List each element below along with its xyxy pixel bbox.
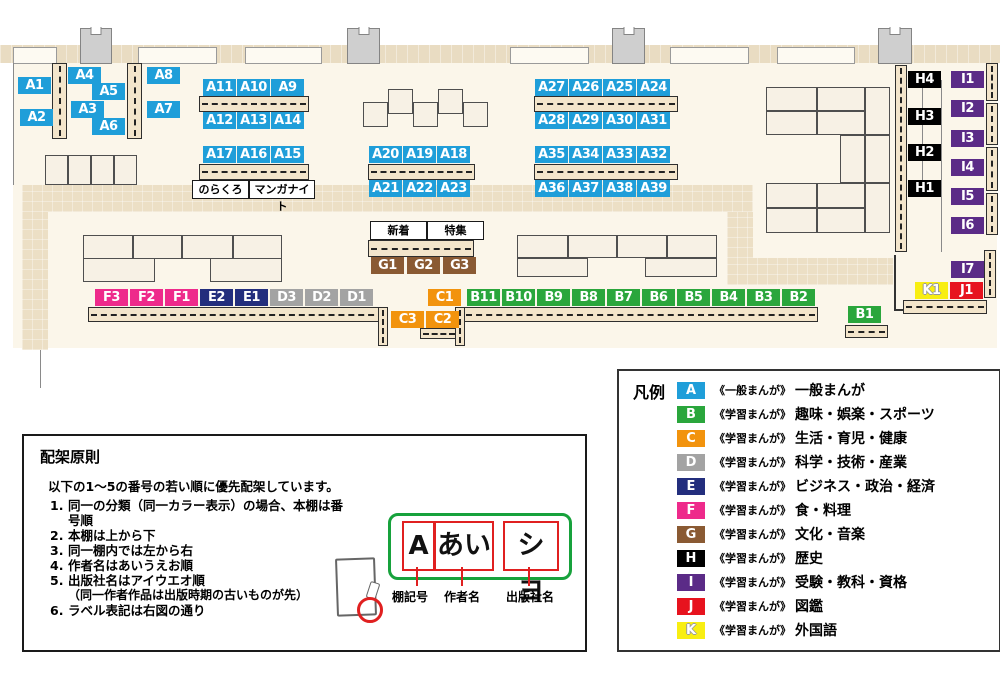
shelf-label-a18: A18 (437, 146, 470, 163)
shelf-label-j1: J1 (950, 282, 983, 299)
legend-item: D 《学習まんが》 科学・技術・産業 (677, 450, 935, 474)
shelf-frame-line (941, 80, 942, 252)
table (667, 235, 717, 258)
shelf-label-d3: D3 (270, 289, 303, 306)
principles-item: 1. 同一の分類（同一カラー表示）の場合、本棚は番号順 (50, 498, 350, 528)
principles-item-text: 同一の分類（同一カラー表示）の場合、本棚は番号順 (68, 498, 350, 528)
principles-intro: 以下の1～5の番号の若い順に優先配架しています。 (48, 476, 339, 495)
shelf-label-a1: A1 (18, 77, 51, 94)
shelf-label-a23: A23 (437, 180, 470, 197)
bookshelf (199, 164, 309, 180)
shelf-label-i5: I5 (951, 188, 984, 205)
legend-item: A 《一般まんが》 一般まんが (677, 378, 935, 402)
shelf-label-a33: A33 (603, 146, 636, 163)
note-norakuro: のらくろ (192, 180, 249, 199)
shelf-label-a34: A34 (569, 146, 602, 163)
shelf-label-i1: I1 (951, 71, 984, 88)
principles-list: 1. 同一の分類（同一カラー表示）の場合、本棚は番号順 2. 本棚は上から下 3… (50, 498, 350, 618)
legend-color-swatch: I (677, 574, 705, 591)
legend-kicker: 《学習まんが》 (714, 574, 791, 590)
pillar (347, 28, 380, 64)
legend-item: F 《学習まんが》 食・料理 (677, 498, 935, 522)
shelf-label-b4: B4 (712, 289, 745, 306)
legend-item: H 《学習まんが》 歴史 (677, 546, 935, 570)
legend-kicker: 《学習まんが》 (714, 430, 791, 446)
table (133, 235, 182, 259)
legend-kicker: 《学習まんが》 (714, 502, 791, 518)
shelf-label-b9: B9 (537, 289, 570, 306)
bookshelf (986, 103, 998, 145)
principles-item-text: 本棚は上から下 (68, 528, 156, 543)
table (865, 183, 890, 233)
principles-item-number: 4. (50, 558, 68, 573)
principles-item-text: 出版社名はアイウエオ順 (68, 573, 205, 588)
walkway (727, 212, 753, 258)
legend-item: C 《学習まんが》 生活・育児・健康 (677, 426, 935, 450)
table (865, 87, 890, 135)
legend-category-label: 科学・技術・産業 (795, 452, 907, 472)
shelf-label-c2: C2 (426, 311, 459, 328)
shelf-label-a16: A16 (237, 146, 270, 163)
legend-color-swatch: G (677, 526, 705, 543)
legend-item: E 《学習まんが》 ビジネス・政治・経済 (677, 474, 935, 498)
legend-kicker: 《学習まんが》 (714, 598, 791, 614)
callout-shelf-code: 棚記号 (392, 588, 428, 605)
table (233, 235, 282, 259)
window (245, 47, 322, 64)
shelf-label-a37: A37 (569, 180, 602, 197)
callout-line (528, 567, 530, 586)
legend-category-label: 受験・教科・資格 (795, 572, 907, 592)
shelf-label-h1: H1 (908, 180, 941, 197)
shelf-label-b5: B5 (677, 289, 710, 306)
table (83, 258, 155, 282)
shelf-label-a9: A9 (271, 79, 304, 96)
shelf-label-k1: K1 (915, 282, 948, 299)
bookshelf (420, 328, 458, 339)
legend-category-label: 趣味・娯楽・スポーツ (795, 404, 935, 424)
wall-line (40, 350, 41, 388)
display-table (363, 102, 388, 127)
bookshelf (463, 307, 818, 322)
callout-publisher: 出版社名 (506, 588, 554, 605)
note-new-arrivals: 新着 (370, 221, 427, 240)
shelf-label-a14: A14 (271, 112, 304, 129)
bookshelf (986, 193, 998, 235)
shelf-label-a13: A13 (237, 112, 270, 129)
shelf-label-a28: A28 (535, 112, 568, 129)
shelf-label-a38: A38 (603, 180, 636, 197)
shelf-label-a35: A35 (535, 146, 568, 163)
legend-item: G 《学習まんが》 文化・音楽 (677, 522, 935, 546)
table (766, 183, 817, 208)
wall-line (894, 255, 896, 311)
bookshelf (127, 63, 142, 139)
window (670, 47, 749, 64)
window (13, 47, 57, 64)
shelf-label-i3: I3 (951, 130, 984, 147)
principles-item-subtext: （同一作者作品は出版時期の古いものが先） (50, 588, 350, 603)
table (568, 235, 617, 258)
shelf-label-a7: A7 (147, 101, 180, 118)
bookshelf (88, 307, 387, 322)
principles-item-text: 同一棚内では左から右 (68, 543, 193, 558)
shelf-label-d1: D1 (340, 289, 373, 306)
shelf-label-a36: A36 (535, 180, 568, 197)
shelf-label-b3: B3 (747, 289, 780, 306)
table (517, 235, 568, 258)
legend-kicker: 《学習まんが》 (714, 526, 791, 542)
walkway (22, 212, 48, 350)
shelf-label-g3: G3 (443, 257, 476, 274)
shelf-label-e1: E1 (235, 289, 268, 306)
table (645, 258, 717, 277)
callout-author: 作者名 (444, 588, 480, 605)
shelf-label-d2: D2 (305, 289, 338, 306)
legend-color-swatch: B (677, 406, 705, 423)
shelf-label-a21: A21 (369, 180, 402, 197)
legend-color-swatch: F (677, 502, 705, 519)
shelf-label-e2: E2 (200, 289, 233, 306)
shelf-label-a20: A20 (369, 146, 402, 163)
legend-item: J 《学習まんが》 図鑑 (677, 594, 935, 618)
shelf-label-b1: B1 (848, 306, 881, 323)
shelf-label-h4: H4 (908, 71, 941, 88)
table (517, 258, 588, 277)
legend-item: I 《学習まんが》 受験・教科・資格 (677, 570, 935, 594)
window (510, 47, 589, 64)
shelf-label-b8: B8 (572, 289, 605, 306)
shelf-label-f1: F1 (165, 289, 198, 306)
shelf-label-a17: A17 (203, 146, 236, 163)
shelf-label-a30: A30 (603, 112, 636, 129)
bookshelf (199, 96, 309, 112)
shelf-label-i2: I2 (951, 100, 984, 117)
bookshelf (845, 325, 888, 338)
bookshelf (903, 300, 987, 314)
shelf-label-g2: G2 (407, 257, 440, 274)
shelf-label-a3: A3 (71, 101, 104, 118)
legend-color-swatch: E (677, 478, 705, 495)
bookshelf (984, 250, 996, 298)
bookshelf (378, 307, 388, 346)
table (840, 135, 865, 183)
principles-item: 4. 作者名はあいうえお順 (50, 558, 350, 573)
legend-category-label: 文化・音楽 (795, 524, 865, 544)
shelf-label-a15: A15 (271, 146, 304, 163)
shelf-label-b6: B6 (642, 289, 675, 306)
principles-item-number: 2. (50, 528, 68, 543)
principles-item-number: 5. (50, 573, 68, 588)
label-cell-shelf-code: A (402, 521, 435, 571)
shelf-label-a2: A2 (20, 109, 53, 126)
table (817, 87, 865, 111)
shelf-label-a27: A27 (535, 79, 568, 96)
principles-item-number: 6. (50, 603, 68, 618)
legend-category-label: 食・料理 (795, 500, 851, 520)
legend-category-label: 図鑑 (795, 596, 823, 616)
pillar (80, 28, 112, 64)
legend-kicker: 《一般まんが》 (714, 382, 791, 398)
shelf-label-f2: F2 (130, 289, 163, 306)
shelf-label-a19: A19 (403, 146, 436, 163)
table (766, 111, 817, 135)
shelf-label-a32: A32 (637, 146, 670, 163)
table (182, 235, 233, 259)
pillar (878, 28, 912, 64)
shelf-label-b11: B11 (467, 289, 500, 306)
legend-color-swatch: D (677, 454, 705, 471)
shelf-label-f3: F3 (95, 289, 128, 306)
legend-color-swatch: H (677, 550, 705, 567)
shelf-label-a8: A8 (147, 67, 180, 84)
principles-item: 2. 本棚は上から下 (50, 528, 350, 543)
bookshelf (368, 240, 474, 257)
walkway (727, 258, 893, 285)
shelf-label-a25: A25 (603, 79, 636, 96)
table (817, 208, 865, 233)
legend-category-label: 外国語 (795, 620, 837, 640)
shelf-label-b7: B7 (607, 289, 640, 306)
callout-line (461, 567, 463, 586)
bookshelf (534, 96, 678, 112)
legend-color-swatch: C (677, 430, 705, 447)
library-manga-floor-map: A1A2A4A5A3A6A8A7A11A10A9A12A13A14A17A16A… (0, 0, 1000, 700)
table (68, 155, 91, 185)
shelf-label-b2: B2 (782, 289, 815, 306)
principles-item: 3. 同一棚内では左から右 (50, 543, 350, 558)
note-special-feature: 特集 (427, 221, 484, 240)
legend-category-label: ビジネス・政治・経済 (795, 476, 935, 496)
shelf-label-a4: A4 (68, 67, 101, 84)
shelf-label-c3: C3 (391, 311, 424, 328)
label-cell-publisher: シヨ (503, 521, 559, 571)
pillar (612, 28, 645, 64)
principles-item-number: 1. (50, 498, 68, 528)
legend-rows: A 《一般まんが》 一般まんが B 《学習まんが》 趣味・娯楽・スポーツ C 《… (677, 378, 935, 642)
shelf-label-a5: A5 (92, 83, 125, 100)
callout-line (416, 567, 418, 586)
shelf-label-h2: H2 (908, 144, 941, 161)
shelf-label-a10: A10 (237, 79, 270, 96)
legend-item: K 《学習まんが》 外国語 (677, 618, 935, 642)
window (777, 47, 855, 64)
shelf-label-a6: A6 (92, 118, 125, 135)
label-cell-author: あい (434, 521, 494, 571)
shelf-label-a11: A11 (203, 79, 236, 96)
table (91, 155, 114, 185)
window (138, 47, 217, 64)
legend-kicker: 《学習まんが》 (714, 406, 791, 422)
legend-title: 凡例 (633, 379, 665, 403)
display-table (463, 102, 488, 127)
shelf-label-h3: H3 (908, 108, 941, 125)
shelf-label-i7: I7 (951, 261, 984, 278)
table (817, 183, 865, 208)
legend-category-label: 生活・育児・健康 (795, 428, 907, 448)
legend-category-label: 一般まんが (795, 380, 865, 400)
shelf-label-i4: I4 (951, 159, 984, 176)
legend-kicker: 《学習まんが》 (714, 478, 791, 494)
bookshelf (52, 63, 67, 139)
principles-item: 5. 出版社名はアイウエオ順 (50, 573, 350, 588)
display-table (413, 102, 438, 127)
bookshelf (368, 164, 475, 180)
shelf-label-a12: A12 (203, 112, 236, 129)
bookshelf (986, 147, 998, 191)
bookshelf (986, 63, 998, 101)
shelf-label-a29: A29 (569, 112, 602, 129)
bookshelf (534, 164, 678, 180)
table (817, 111, 865, 135)
shelf-label-a22: A22 (403, 180, 436, 197)
legend-panel: 凡例 A 《一般まんが》 一般まんが B 《学習まんが》 趣味・娯楽・スポーツ … (617, 369, 1000, 652)
table (210, 258, 282, 282)
legend-kicker: 《学習まんが》 (714, 454, 791, 470)
shelf-label-i6: I6 (951, 217, 984, 234)
principles-item-number: 3. (50, 543, 68, 558)
legend-kicker: 《学習まんが》 (714, 550, 791, 566)
table (766, 208, 817, 233)
legend-color-swatch: J (677, 598, 705, 615)
legend-color-swatch: A (677, 382, 705, 399)
table (83, 235, 133, 259)
shelf-label-c1: C1 (428, 289, 461, 306)
legend-color-swatch: K (677, 622, 705, 639)
shelf-label-a31: A31 (637, 112, 670, 129)
principles-item-text: 作者名はあいうえお順 (68, 558, 193, 573)
label-position-circle (357, 597, 383, 623)
display-table (438, 89, 463, 114)
legend-category-label: 歴史 (795, 548, 823, 568)
table (617, 235, 667, 258)
shelf-label-b10: B10 (502, 289, 535, 306)
shelf-label-a24: A24 (637, 79, 670, 96)
legend-item: B 《学習まんが》 趣味・娯楽・スポーツ (677, 402, 935, 426)
shelf-label-g1: G1 (371, 257, 404, 274)
principles-item-text: ラベル表記は右図の通り (68, 603, 206, 618)
display-table (388, 89, 413, 114)
table (45, 155, 68, 185)
note-manganight: マンガナイト (249, 180, 315, 199)
bookshelf (895, 65, 907, 252)
legend-kicker: 《学習まんが》 (714, 622, 791, 638)
shelf-label-a26: A26 (569, 79, 602, 96)
principles-item: 6. ラベル表記は右図の通り (50, 603, 350, 618)
shelf-label-a39: A39 (637, 180, 670, 197)
table (766, 87, 817, 111)
principles-title: 配架原則 (40, 446, 100, 467)
wall-line (13, 63, 14, 185)
table (114, 155, 137, 185)
table (865, 135, 890, 183)
